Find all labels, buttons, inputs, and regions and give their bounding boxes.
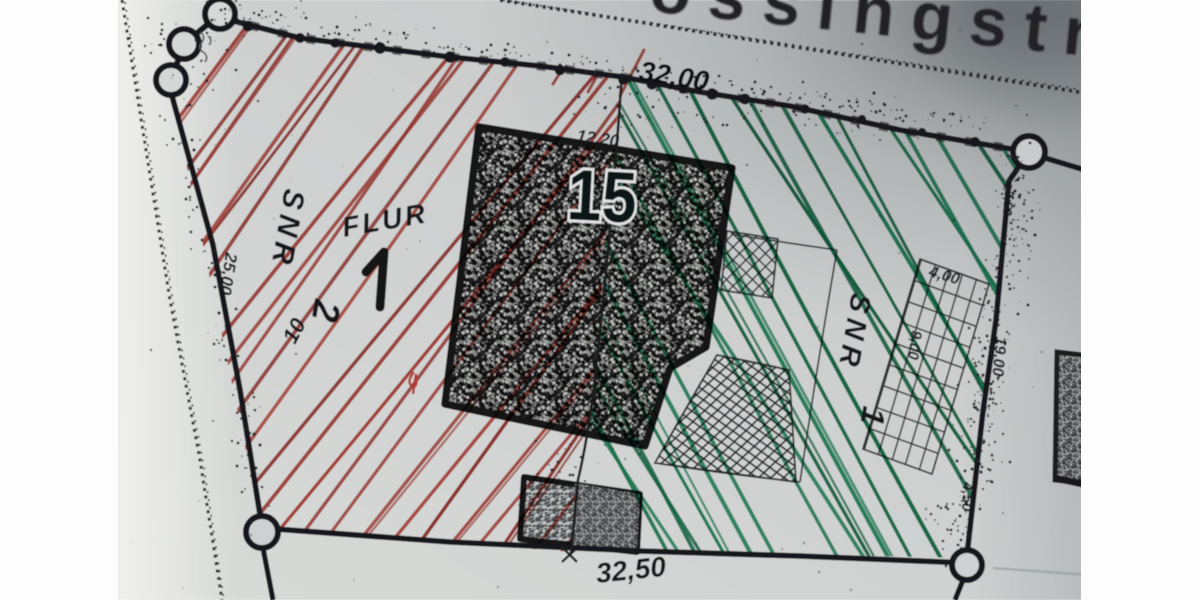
svg-text:15: 15	[565, 155, 639, 239]
svg-text:19,00: 19,00	[989, 336, 1009, 377]
svg-text:3,50: 3,50	[1000, 190, 1017, 217]
svg-text:4,50: 4,50	[958, 481, 976, 512]
